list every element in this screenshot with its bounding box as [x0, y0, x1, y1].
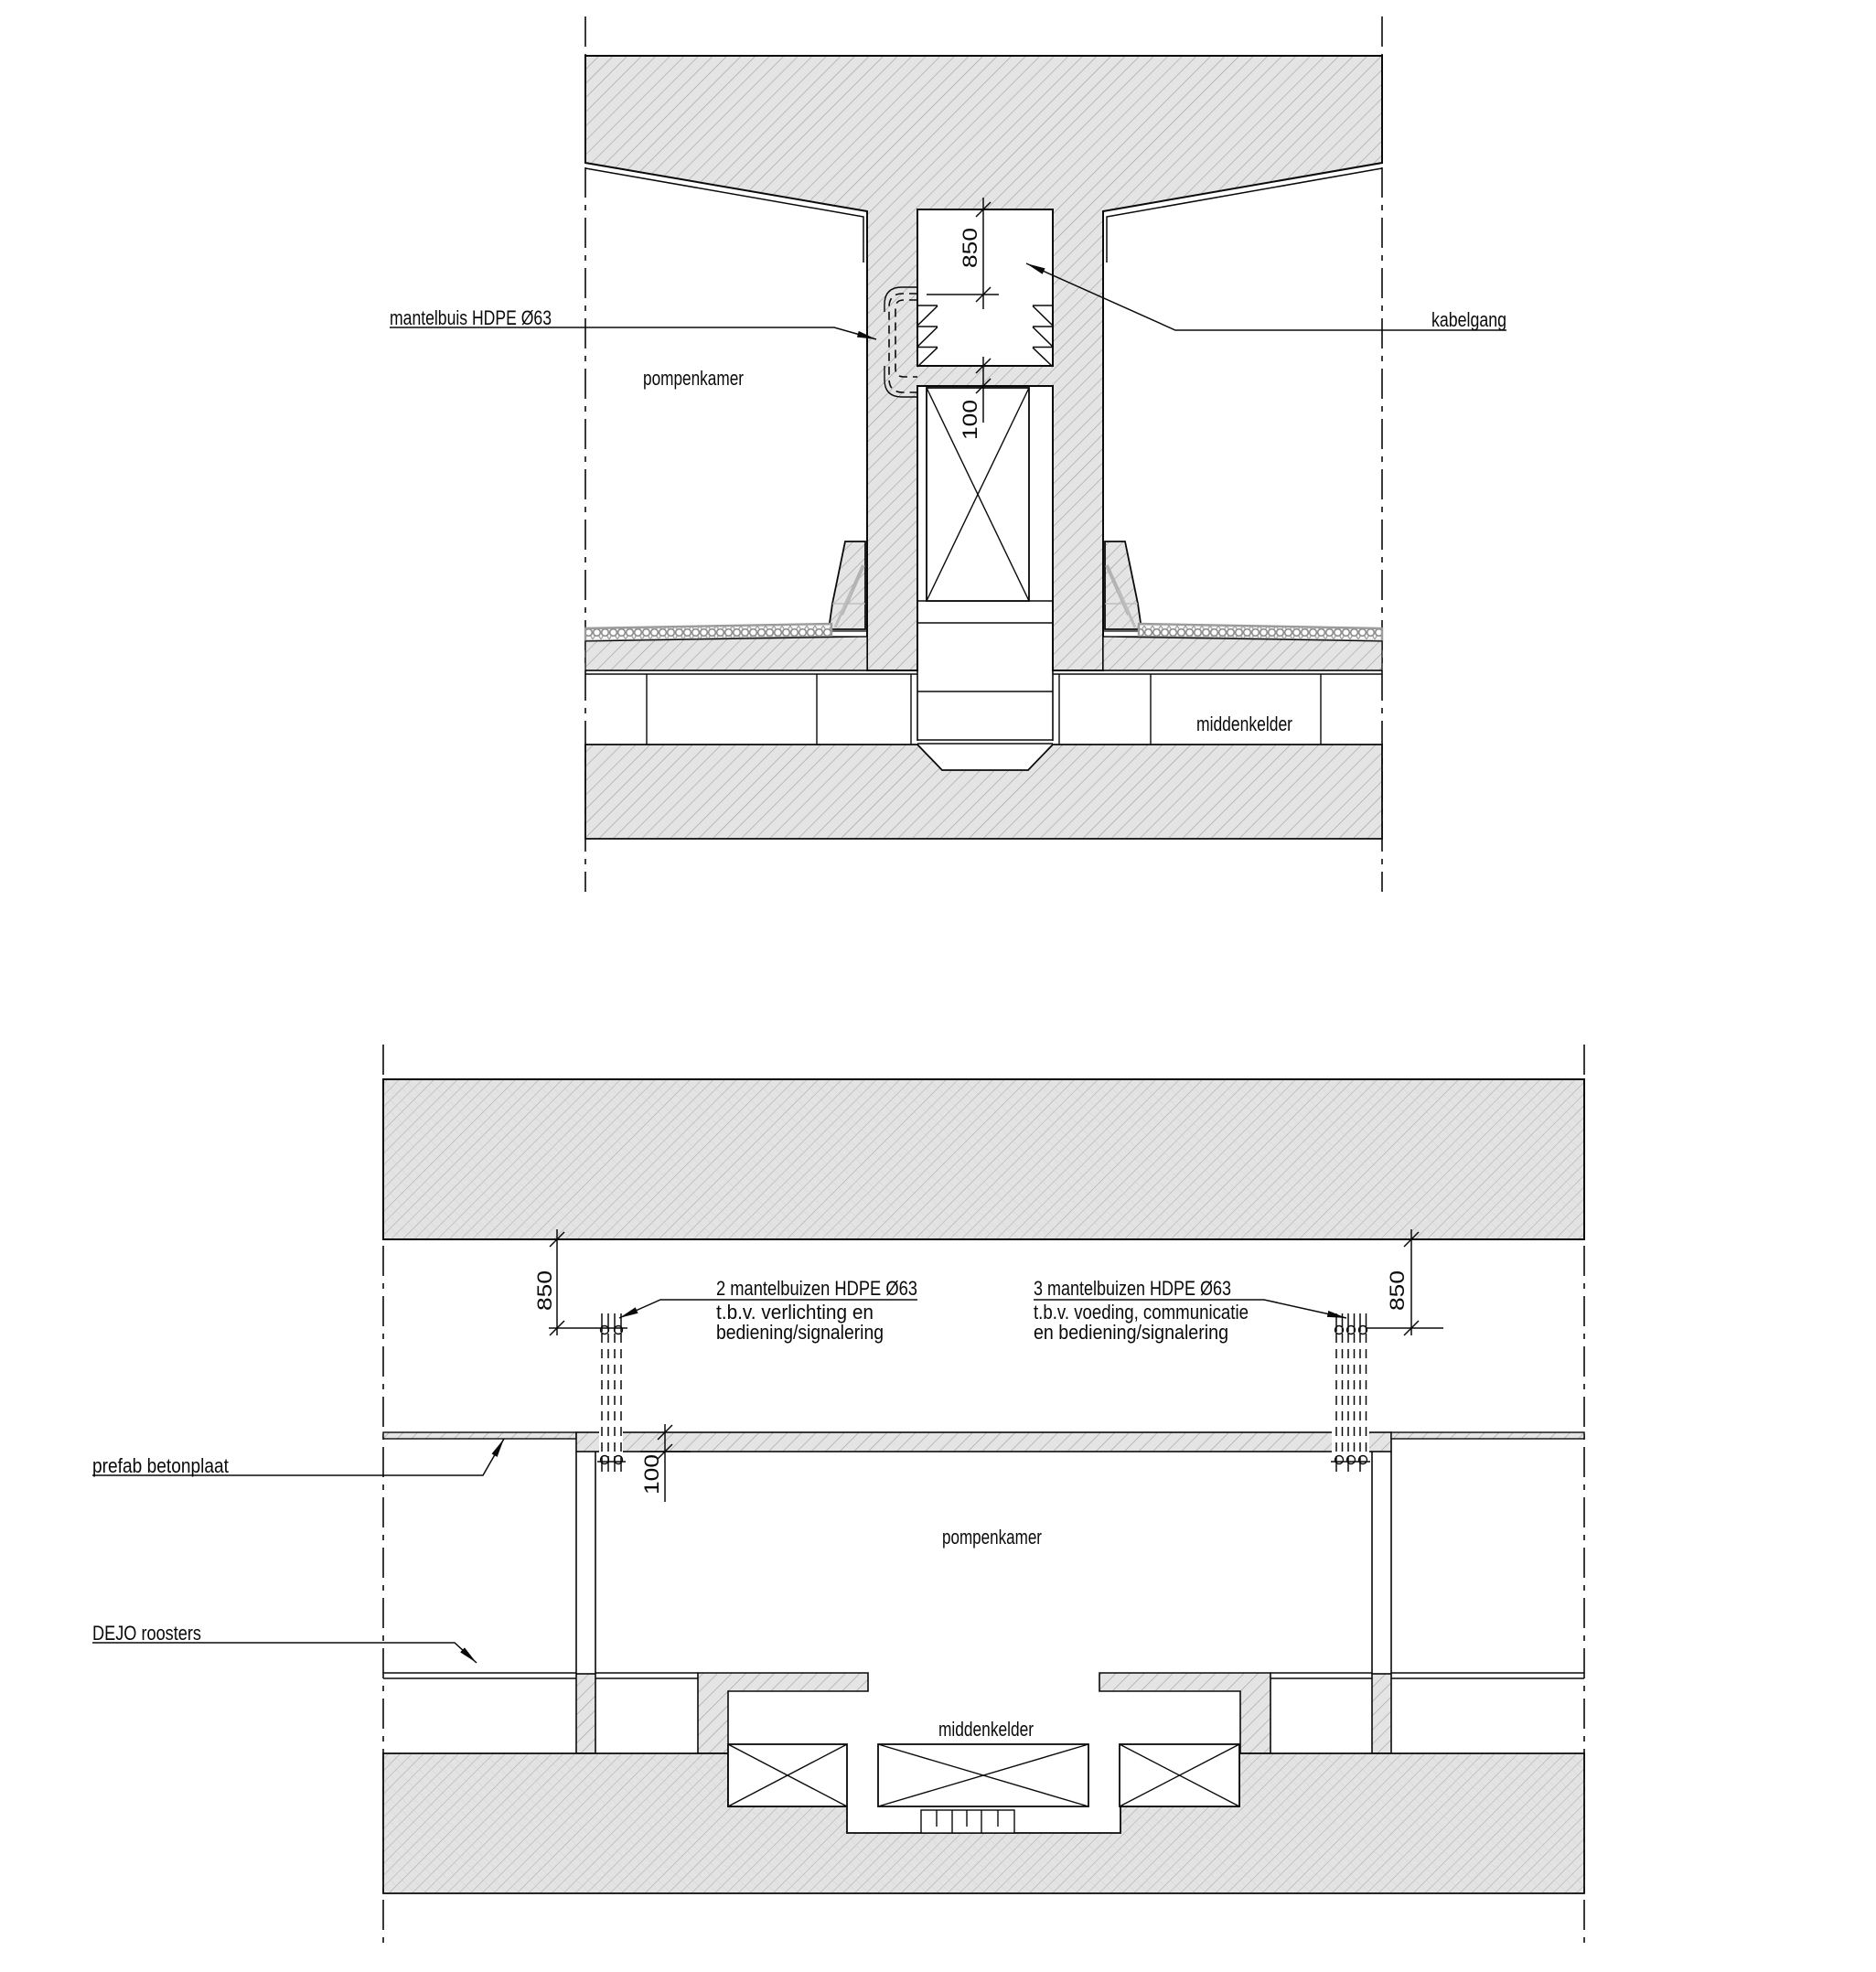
svg-text:mantelbuis HDPE Ø63: mantelbuis HDPE Ø63 — [390, 306, 552, 329]
svg-text:100: 100 — [640, 1454, 663, 1495]
svg-text:middenkelder: middenkelder — [1196, 713, 1292, 735]
svg-text:kabelgang: kabelgang — [1431, 308, 1506, 331]
svg-text:middenkelder: middenkelder — [938, 1718, 1034, 1741]
svg-text:2 mantelbuizen HDPE Ø63: 2 mantelbuizen HDPE Ø63 — [716, 1277, 917, 1300]
svg-text:pompenkamer: pompenkamer — [643, 367, 744, 390]
svg-text:3 mantelbuizen HDPE Ø63: 3 mantelbuizen HDPE Ø63 — [1034, 1277, 1231, 1300]
svg-text:en bediening/signalering: en bediening/signalering — [1034, 1321, 1228, 1344]
svg-text:bediening/signalering: bediening/signalering — [716, 1321, 884, 1344]
svg-text:DEJO roosters: DEJO roosters — [92, 1622, 201, 1645]
svg-text:850: 850 — [959, 228, 981, 268]
svg-text:100: 100 — [959, 400, 981, 440]
svg-text:pompenkamer: pompenkamer — [942, 1526, 1042, 1549]
svg-text:850: 850 — [533, 1270, 556, 1311]
svg-text:850: 850 — [1386, 1270, 1409, 1311]
svg-text:prefab betonplaat: prefab betonplaat — [92, 1454, 229, 1477]
